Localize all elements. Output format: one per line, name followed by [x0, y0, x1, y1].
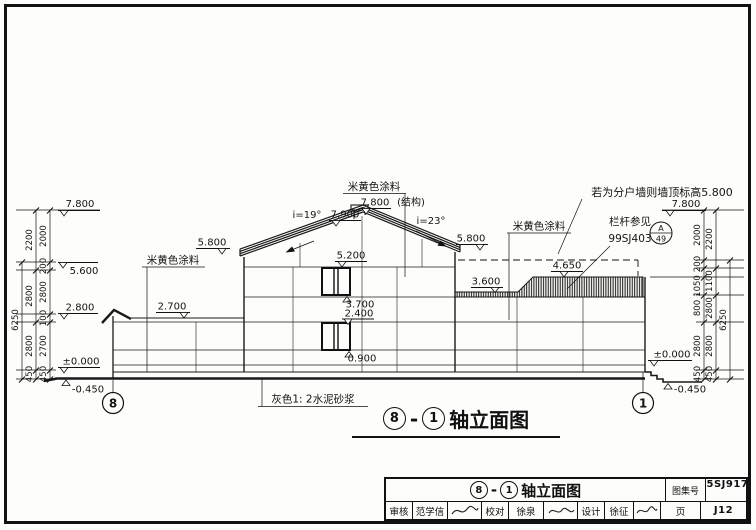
railing-note-line1: 栏杆参见: [609, 215, 651, 228]
paint-note: 米黄色涂料: [147, 254, 200, 267]
reviewer-name: 范学信: [413, 502, 448, 519]
title-axis-start: 8: [470, 481, 488, 499]
level-label: 4.650: [553, 261, 582, 272]
dim-label: 800: [693, 300, 703, 316]
designer-signature: [634, 502, 661, 519]
title-axis-end: 1: [500, 481, 518, 499]
elevation-drawing: 2000 200 2800 100 2700 450 2200 2800 280…: [0, 0, 756, 530]
level-label: 2.400: [345, 309, 374, 320]
dim-label: 2000: [693, 224, 703, 246]
signature-scribble: [635, 504, 659, 518]
left-dimension-labels: 2000 200 2800 100 2700 450 2200 2800 280…: [11, 225, 49, 382]
level-label: 7.800: [361, 198, 390, 209]
dim-label: 2800: [39, 281, 49, 303]
ground-line: [44, 379, 645, 382]
dim-label: 6250: [11, 309, 21, 331]
reviewer-signature: [448, 502, 482, 519]
level-label: 7.800: [66, 199, 95, 210]
detail-letter: A: [658, 224, 664, 233]
page-label: 页: [661, 502, 701, 519]
caption-axis-end: 1: [422, 407, 445, 430]
dim-label: 2800: [705, 335, 715, 357]
dim-label: 200: [693, 256, 703, 272]
review-label: 审核: [386, 502, 413, 519]
party-wall-dashed-line: [458, 260, 638, 276]
level-label: 5.200: [337, 251, 366, 262]
slope-label: i=23°: [417, 216, 446, 227]
dim-label: 2700: [39, 335, 49, 357]
dim-label: 2800: [25, 335, 35, 357]
titleblock-title: 8 - 1 轴立面图: [386, 479, 666, 501]
level-label: 2.700: [158, 302, 187, 313]
level-label: 7.800: [672, 199, 701, 210]
left-wall-cap: [102, 310, 131, 323]
level-label-suffix: (结构): [397, 196, 425, 209]
railing-note-line2: 99SJ403: [608, 233, 651, 245]
dim-label: 450: [705, 366, 715, 382]
level-label: 0.900: [348, 354, 377, 365]
proofer-name: 徐泉: [509, 502, 544, 519]
title-separator: -: [491, 481, 497, 499]
dim-label: 450: [39, 366, 49, 382]
dim-label: 100: [39, 310, 49, 326]
paint-note: 米黄色涂料: [348, 180, 401, 193]
level-label: 5.800: [457, 234, 486, 245]
dim-label: 2800: [705, 297, 715, 319]
designer-name: 徐征: [605, 502, 634, 519]
level-label: ±0.000: [653, 350, 690, 361]
axis-number: 8: [109, 397, 117, 411]
caption-text: 轴立面图: [449, 404, 529, 433]
detail-number: 49: [656, 235, 666, 244]
drawing-caption: 8 - 1 轴立面图: [352, 404, 560, 438]
dim-label: 450: [693, 366, 703, 382]
dim-label: 200: [39, 258, 49, 274]
title-text: 轴立面图: [521, 480, 581, 501]
dim-label: 2800: [693, 335, 703, 357]
page-number: J12: [701, 502, 746, 519]
dim-label: 2800: [25, 285, 35, 307]
slope-arrowhead: [286, 247, 296, 253]
signature-scribble: [546, 504, 576, 518]
level-label: 2.800: [66, 303, 95, 314]
party-wall-note: 若为分户墙则墙顶标高5.800: [591, 185, 733, 199]
dim-label: 1050: [693, 275, 703, 297]
dim-label: 6250: [719, 309, 729, 331]
title-block: 8 - 1 轴立面图 图集号 05SJ917-1 审核 范学信 校对 徐泉 设计…: [384, 477, 748, 521]
dim-label: 1100: [705, 270, 715, 292]
level-label: 3.600: [472, 277, 501, 288]
dim-label: 2200: [25, 229, 35, 251]
axis-number: 1: [639, 397, 647, 411]
proof-label: 校对: [482, 502, 509, 519]
dim-label: 2000: [39, 225, 49, 247]
dim-label: 450: [25, 366, 35, 382]
dim-label: 2200: [705, 228, 715, 250]
level-label: -0.450: [72, 385, 104, 396]
level-label: ±0.000: [62, 357, 99, 368]
atlas-number-label: 图集号: [666, 479, 706, 501]
level-label: 7.900: [331, 210, 360, 221]
atlas-number-value: 05SJ917-1: [706, 479, 746, 501]
design-label: 设计: [578, 502, 605, 519]
level-label: 5.800: [198, 238, 227, 249]
level-label: 5.600: [70, 266, 99, 277]
slope-label: i=19°: [293, 210, 322, 221]
caption-separator: -: [410, 407, 418, 431]
right-dimension-labels: 2000 200 1050 800 2800 450 2200 1100 280…: [693, 224, 729, 382]
paint-note: 米黄色涂料: [513, 220, 566, 233]
plinth-note: 灰色1: 2水泥砂浆: [271, 393, 355, 406]
signature-scribble: [450, 504, 480, 518]
proofer-signature: [544, 502, 578, 519]
drawing-sheet: 2000 200 2800 100 2700 450 2200 2800 280…: [0, 0, 756, 530]
level-label: -0.450: [674, 385, 706, 396]
caption-axis-start: 8: [383, 407, 406, 430]
